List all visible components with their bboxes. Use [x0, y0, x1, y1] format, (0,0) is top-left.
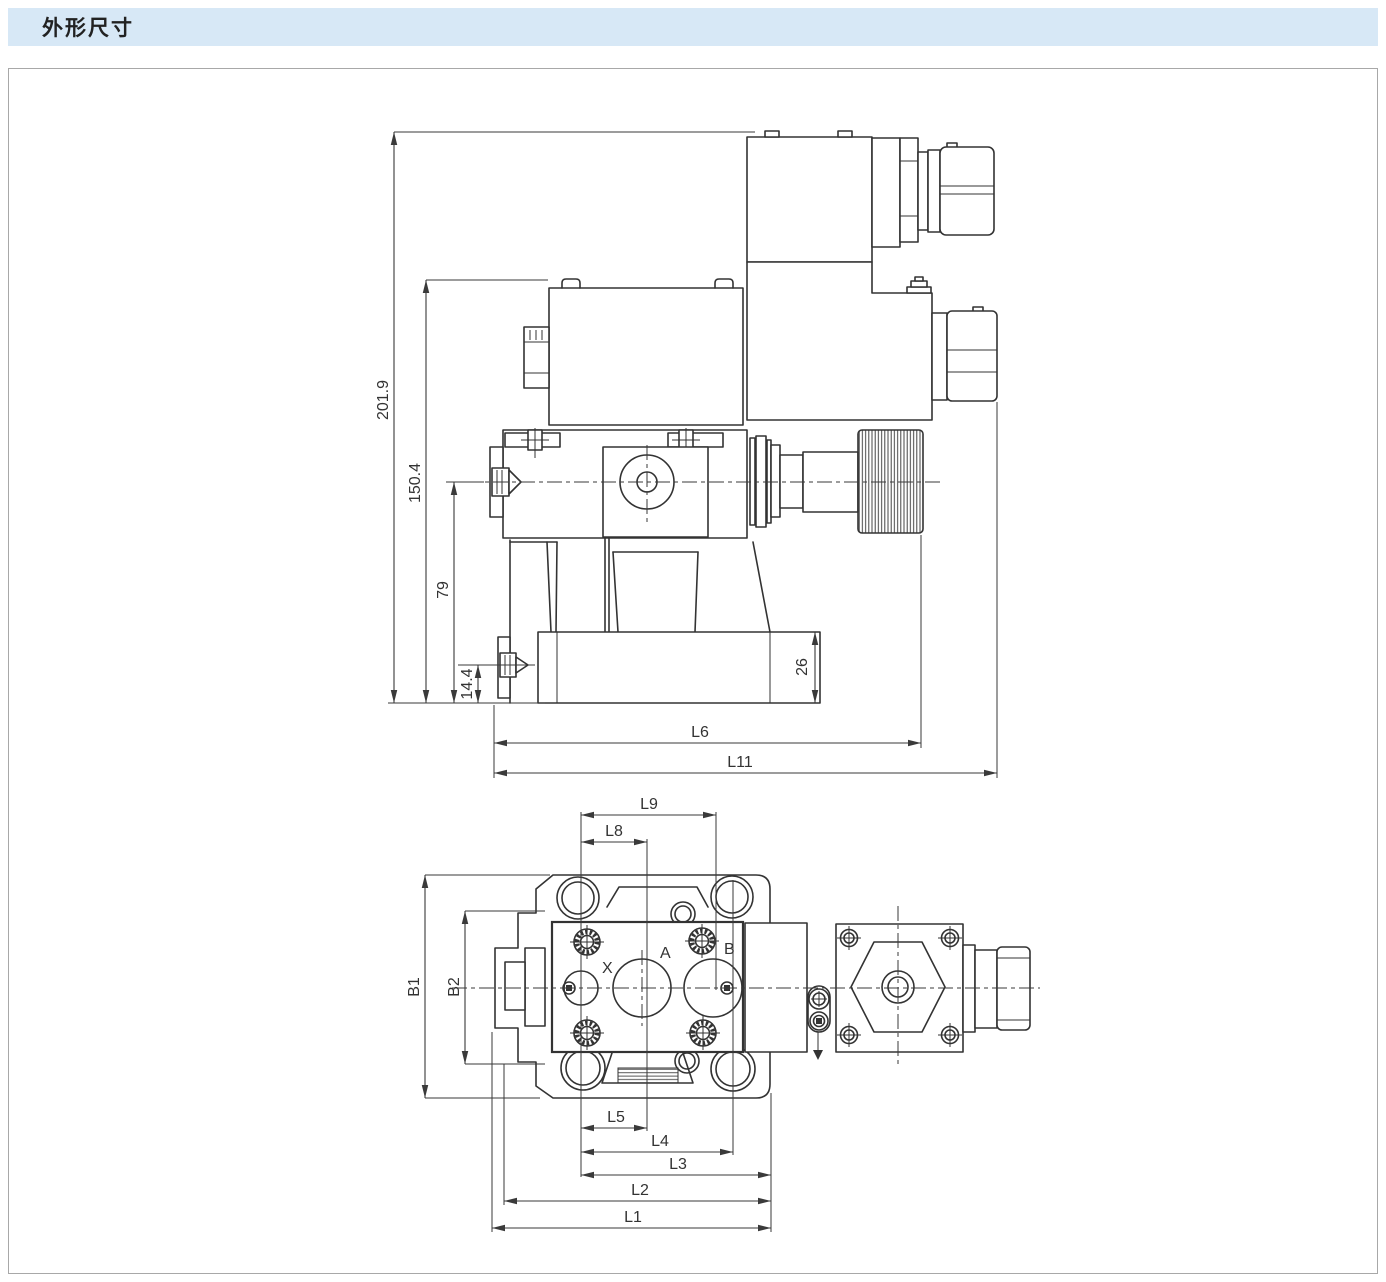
dim-b2-label: B2 — [446, 977, 463, 997]
dim-upper-height-label: 150.4 — [407, 463, 424, 503]
dim-port-height-label: 14.4 — [459, 668, 476, 699]
port-x-label: X — [602, 960, 613, 977]
electrical-connector-lower — [932, 307, 997, 401]
main-solenoid-right — [747, 131, 997, 420]
dim-base-thickness-label: 26 — [794, 658, 811, 676]
pilot-solenoid-left — [524, 279, 743, 425]
pilot-valve-body — [490, 428, 747, 538]
solenoid-top-view — [745, 923, 1030, 1060]
adjust-screw — [809, 989, 829, 1009]
dim-b1-label: B1 — [406, 977, 423, 997]
dimension-drawing: 201.9 150.4 79 14.4 26 L6 L11 — [0, 0, 1386, 1282]
drain-arrow — [813, 1050, 823, 1060]
top-view-drawing: X A B — [406, 796, 1040, 1232]
dim-total-height-label: 201.9 — [375, 380, 392, 420]
valve-base — [498, 538, 820, 703]
port-a-label: A — [660, 945, 671, 962]
dim-l4-label: L4 — [651, 1133, 669, 1150]
dim-l1-label: L1 — [624, 1209, 642, 1226]
dim-l2-label: L2 — [631, 1182, 649, 1199]
dim-l5-label: L5 — [607, 1109, 625, 1126]
clamp-block — [525, 948, 545, 1026]
dim-l9-label: L9 — [640, 796, 658, 813]
side-view-drawing: 201.9 150.4 79 14.4 26 L6 L11 — [375, 131, 997, 778]
dim-l8-label: L8 — [605, 823, 623, 840]
clamp-plate — [505, 962, 525, 1010]
dim-l6-label: L6 — [691, 724, 709, 741]
electrical-connector-top — [900, 138, 994, 242]
dim-pilot-height-label: 79 — [435, 581, 452, 599]
dim-l3-label: L3 — [669, 1156, 687, 1173]
dim-l11-label: L11 — [727, 754, 753, 771]
